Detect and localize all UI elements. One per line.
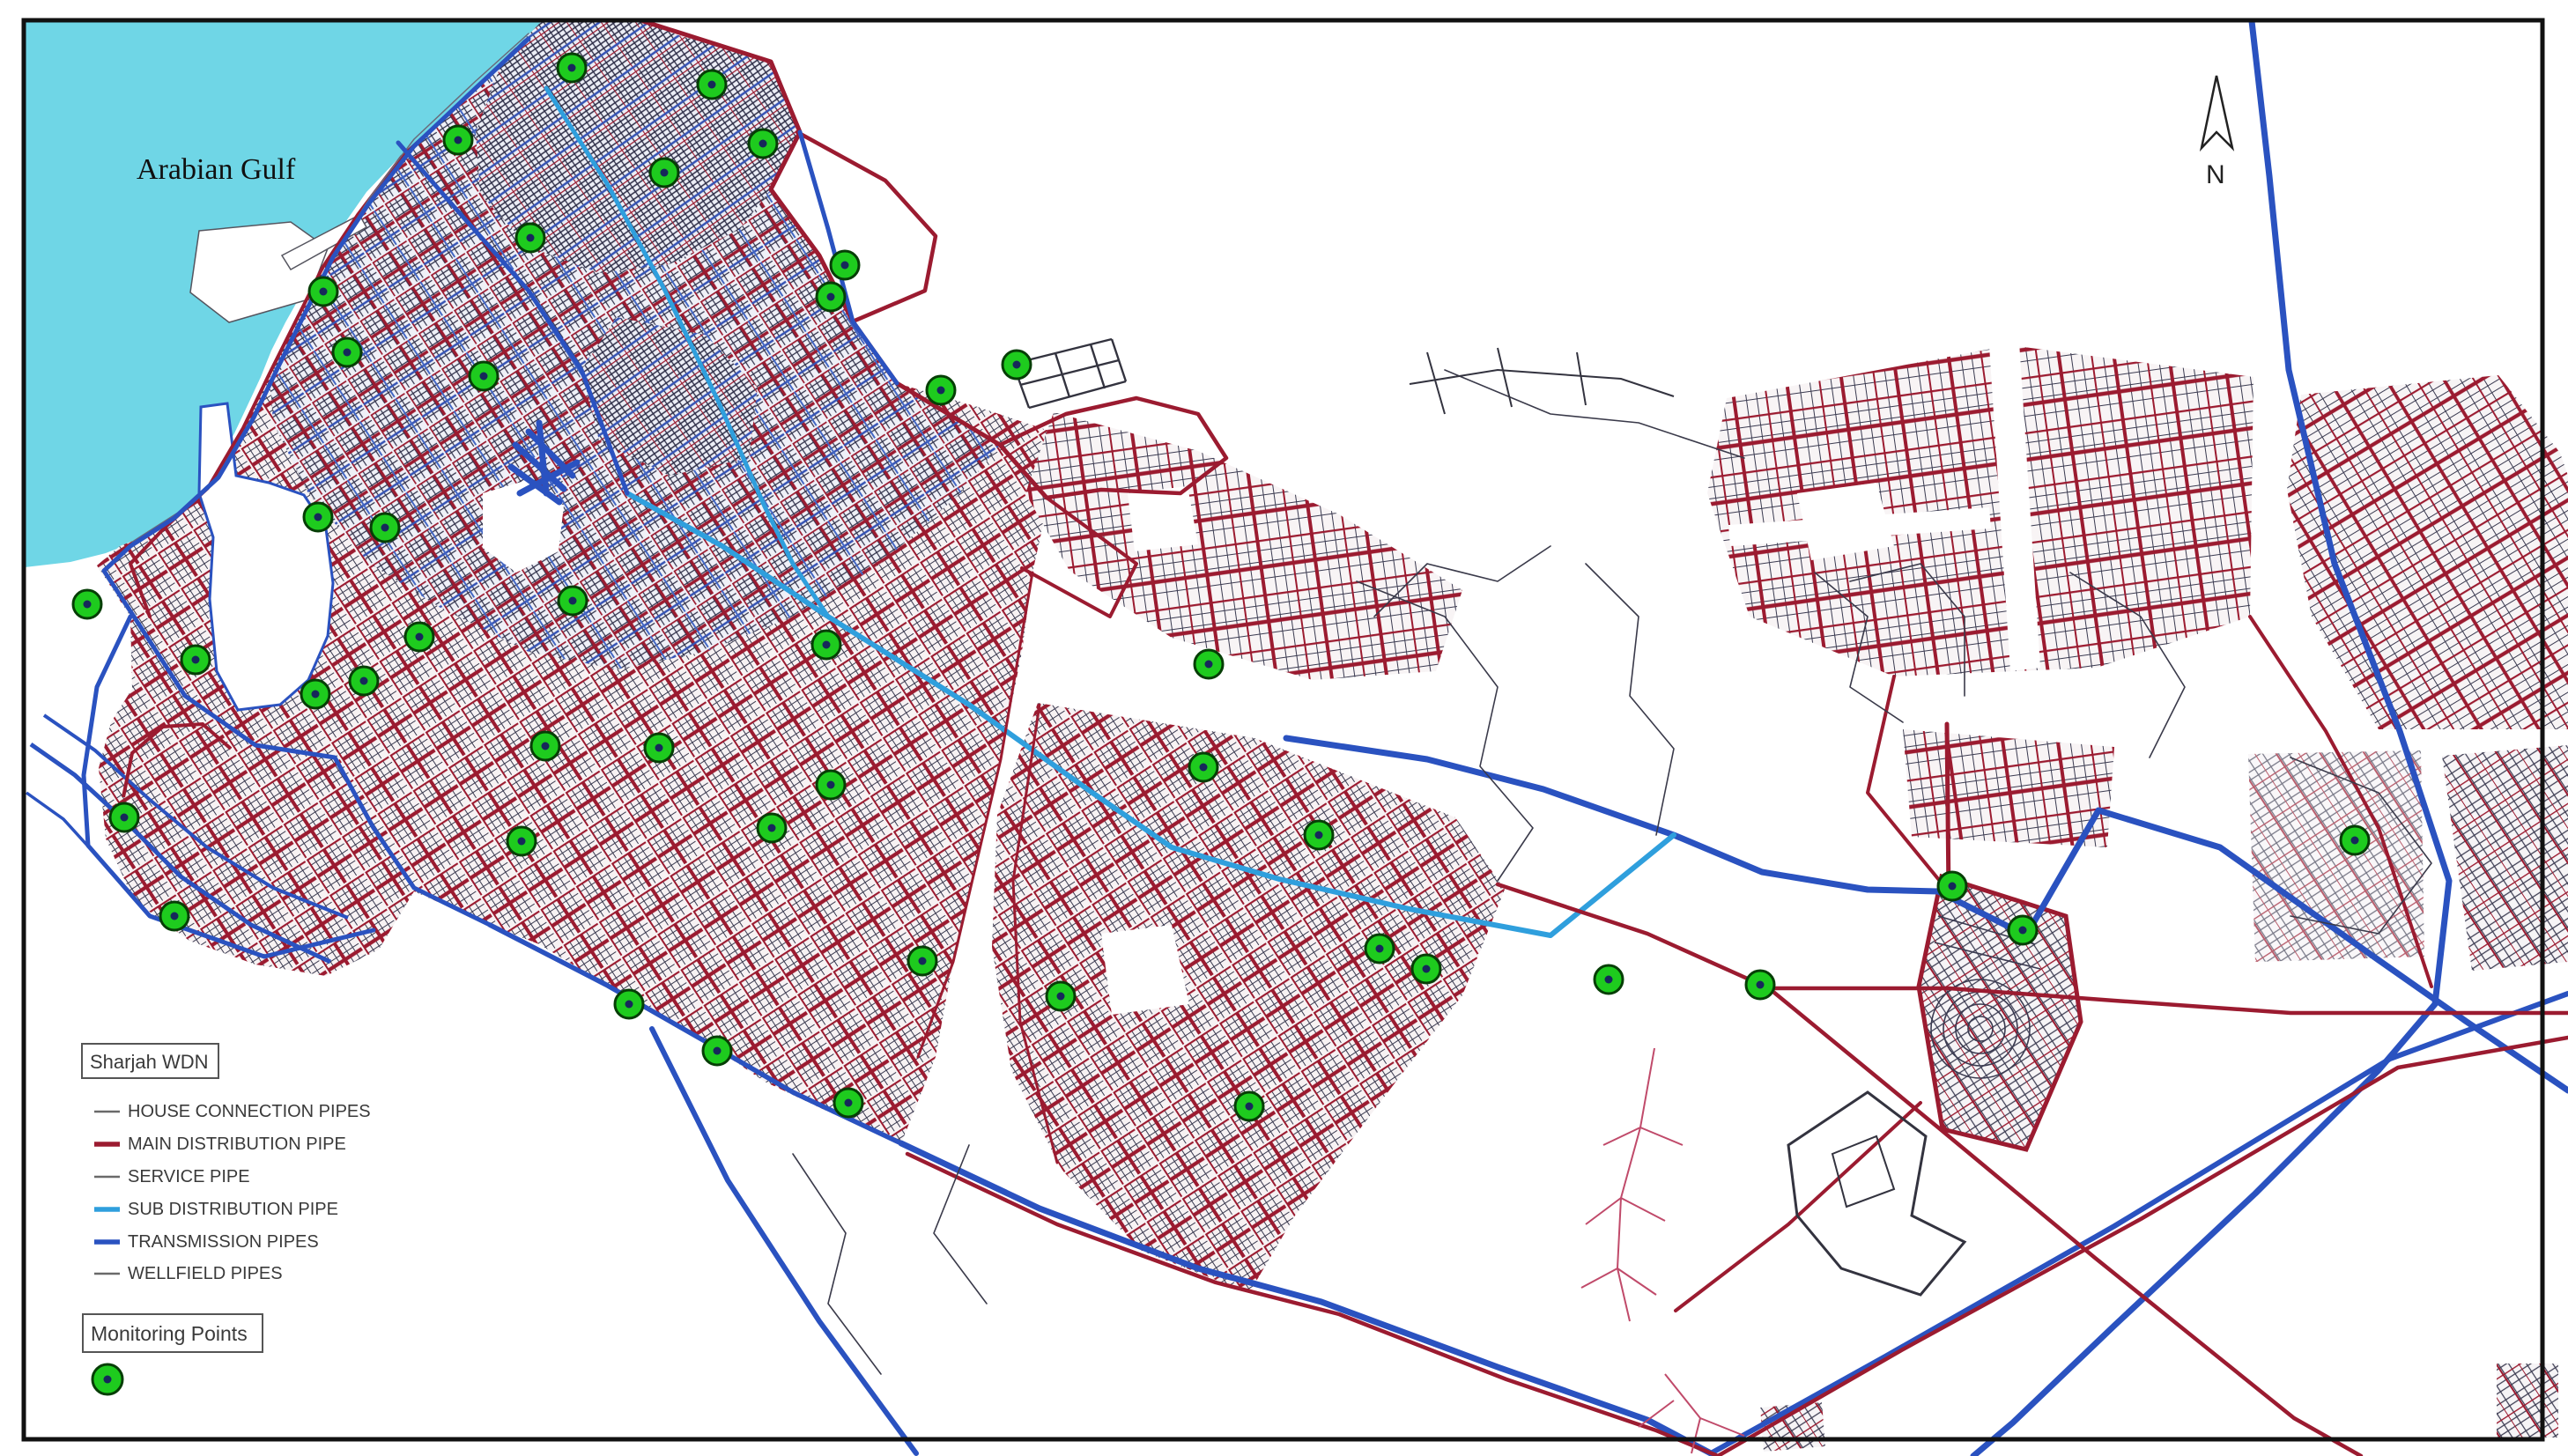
- svg-text:TRANSMISSION PIPES: TRANSMISSION PIPES: [128, 1232, 319, 1252]
- svg-text:MAIN DISTRIBUTION PIPE: MAIN DISTRIBUTION PIPE: [128, 1134, 346, 1154]
- svg-text:N: N: [2206, 160, 2225, 189]
- svg-text:HOUSE CONNECTION PIPES: HOUSE CONNECTION PIPES: [128, 1102, 371, 1121]
- svg-text:WELLFIELD PIPES: WELLFIELD PIPES: [128, 1264, 283, 1283]
- svg-text:Monitoring Points: Monitoring Points: [91, 1322, 248, 1345]
- svg-text:SUB DISTRIBUTION PIPE: SUB DISTRIBUTION PIPE: [128, 1200, 338, 1219]
- svg-text:SERVICE PIPE: SERVICE PIPE: [128, 1167, 250, 1186]
- svg-text:Arabian Gulf: Arabian Gulf: [137, 153, 296, 186]
- svg-text:Sharjah WDN: Sharjah WDN: [90, 1051, 208, 1073]
